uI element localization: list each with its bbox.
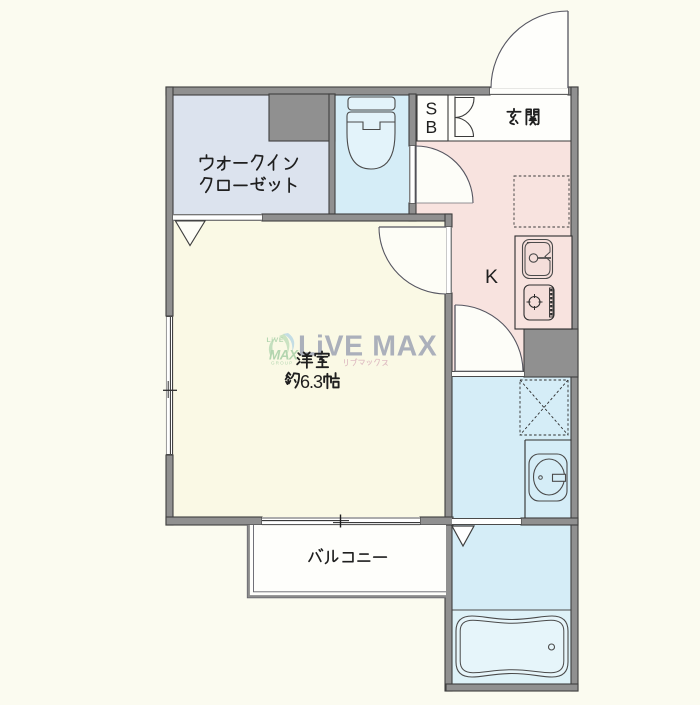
svg-text:LiVE: LiVE <box>267 337 285 344</box>
svg-text:K: K <box>485 266 498 288</box>
svg-text:B: B <box>426 117 438 137</box>
svg-text:GROUP: GROUP <box>271 361 293 366</box>
svg-text:6.3: 6.3 <box>300 372 323 392</box>
svg-text:S: S <box>426 99 438 119</box>
